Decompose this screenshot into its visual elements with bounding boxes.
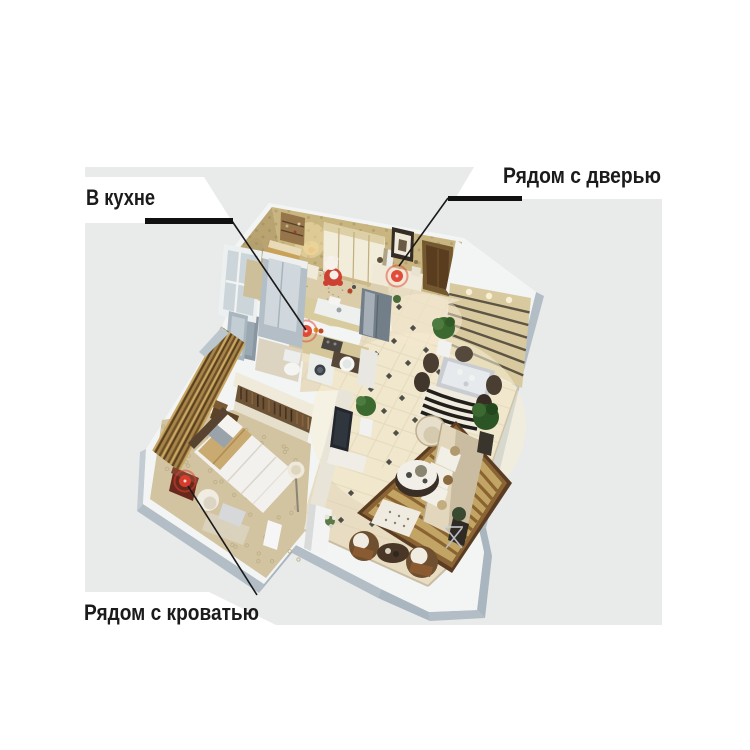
svg-text:Рядом с дверью: Рядом с дверью (503, 163, 661, 188)
svg-text:Рядом с кроватью: Рядом с кроватью (84, 600, 259, 625)
svg-text:В кухне: В кухне (86, 185, 155, 210)
